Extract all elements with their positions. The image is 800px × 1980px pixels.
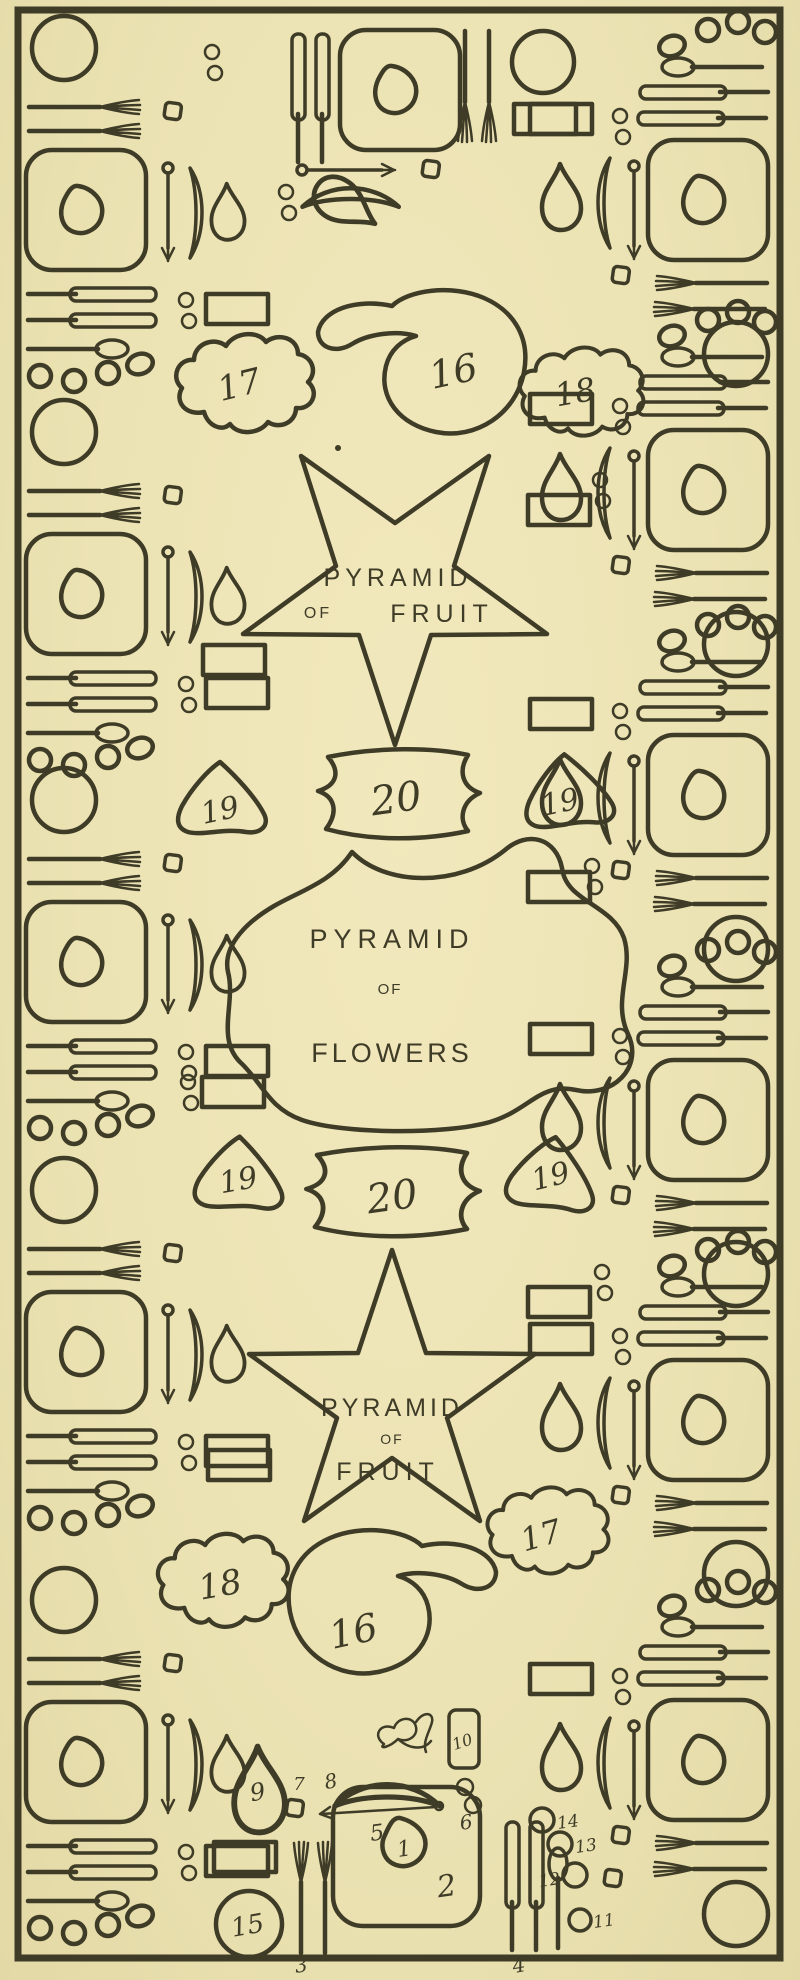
dish-number: 17 <box>214 361 266 410</box>
pyramid-of-flowers: PYRAMID OF FLOWERS <box>227 839 632 1131</box>
cruet-pair-icon <box>595 1265 612 1300</box>
glass-icon <box>548 1832 572 1856</box>
key-number-glass12: 12 <box>537 1869 561 1892</box>
pyramid-of-fruit-top: PYRAMID OF FRUIT <box>243 456 547 745</box>
pyramid-label-line2: OF <box>380 1431 403 1447</box>
knife-icon <box>506 1822 519 1950</box>
pyramid-label-line2: OF <box>378 981 403 998</box>
key-number-napkin: 1 <box>395 1836 412 1863</box>
dish-paisley-16-bottom: 16 <box>289 1530 496 1673</box>
dish-cloud-17-top: 17 <box>176 334 314 432</box>
scanned-book-page: 17 16 18 PYRAMID OF FRUIT 19 20 19 <box>0 0 800 1980</box>
pyramid-label-line1: PYRAMID <box>309 924 474 954</box>
place-setting-right <box>530 11 776 386</box>
dish-row2: 19 20 19 <box>194 1131 601 1236</box>
place-setting-left <box>26 1158 268 1534</box>
ink-dot <box>335 445 341 451</box>
key-number-salt: 7 <box>293 1774 305 1795</box>
menu-card-icon <box>203 645 265 675</box>
dish-paisley-16-top: 16 <box>318 290 525 433</box>
pyramid-label-line3: FRUIT <box>390 600 494 628</box>
dish-number: 19 <box>528 1155 574 1198</box>
cruet-pair-icon <box>593 473 610 508</box>
key-number-menu: 10 <box>450 1730 475 1754</box>
pyramid-of-fruit-bottom: PYRAMID OF FRUIT <box>249 1250 535 1521</box>
key-number-breadplate: 15 <box>229 1908 267 1943</box>
garnish-squiggle <box>378 1714 432 1752</box>
key-number-carafe: 9 <box>248 1777 268 1807</box>
pyramid-label-line2: OF <box>304 605 332 622</box>
salt-cellar-icon <box>604 1869 622 1887</box>
pyramid-label-line3: FLOWERS <box>311 1038 473 1068</box>
place-setting-top <box>205 30 576 242</box>
pyramid-label-line1: PYRAMID <box>321 1394 463 1422</box>
fork-icon <box>318 1842 332 1953</box>
key-number-glass11: 11 <box>592 1910 616 1933</box>
dish-number: 16 <box>325 1605 381 1658</box>
glass-icon <box>569 1909 591 1931</box>
dish-cloud-17-bottom: 17 <box>487 1487 608 1573</box>
key-number-plate: 2 <box>434 1868 459 1905</box>
dish-cloud-18-bottom: 18 <box>158 1534 289 1627</box>
dish-number: 18 <box>195 1562 245 1609</box>
dish-number: 17 <box>516 1511 566 1559</box>
glass-icon <box>563 1863 587 1887</box>
key-number-skewer: 5 <box>368 1820 385 1847</box>
place-setting-right <box>530 931 776 1306</box>
key-number-roll: 8 <box>322 1768 339 1794</box>
dish-number: 19 <box>198 790 243 832</box>
place-setting-left <box>26 16 268 392</box>
spoon-icon <box>549 1848 567 1948</box>
menu-card-icon <box>528 1287 590 1317</box>
dish-number: 18 <box>552 370 599 414</box>
key-place-setting: 1 2 3 4 9 7 8 5 10 6 14 13 12 <box>214 1710 622 1978</box>
salt-cellar-icon <box>286 1799 304 1817</box>
cruet-pair-icon <box>585 859 602 894</box>
dish-number: 19 <box>217 1160 261 1201</box>
pyramid-label-line3: FRUIT <box>336 1458 440 1486</box>
place-setting-left <box>26 400 268 776</box>
dish-row1: 19 20 19 <box>178 749 615 838</box>
table-plan-diagram: 17 16 18 PYRAMID OF FRUIT 19 20 19 <box>0 0 800 1980</box>
key-number-glass13: 13 <box>574 1835 598 1858</box>
dish-number: 16 <box>425 345 481 398</box>
fork-icon <box>294 1842 308 1953</box>
place-setting-right <box>530 1571 776 1946</box>
right-covers <box>530 11 776 1946</box>
dish-number: 20 <box>367 773 425 826</box>
pyramid-label-line1: PYRAMID <box>324 564 473 592</box>
dish-number: 20 <box>363 1171 421 1224</box>
finger-bowl-icon <box>512 31 574 93</box>
